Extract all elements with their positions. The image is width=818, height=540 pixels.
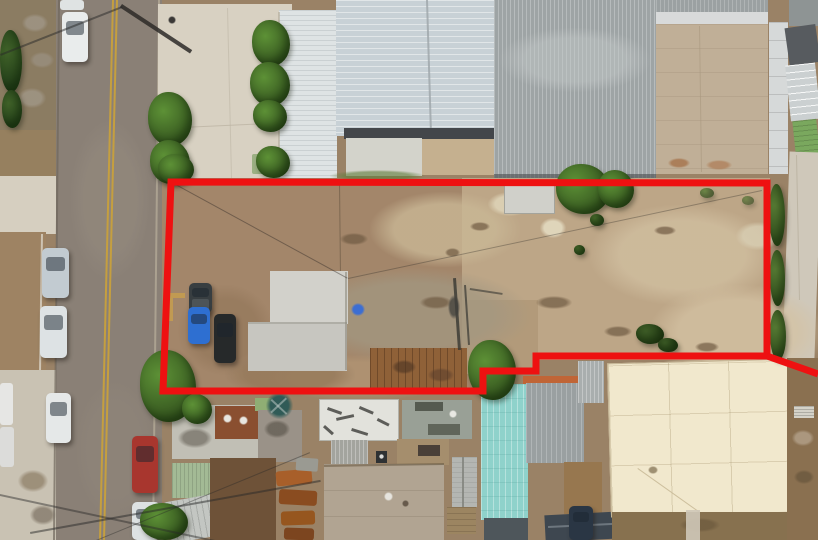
yard-clutter-1	[18, 470, 48, 492]
lot-dark-spot-5	[604, 326, 632, 337]
ac-unit-dot	[379, 454, 384, 459]
roof-cream-mark	[648, 466, 658, 474]
roof-ne-gray	[789, 0, 818, 26]
shed-gable	[452, 457, 477, 507]
roof-cream-hseams	[609, 361, 791, 514]
vent-box-dark	[418, 445, 440, 456]
parapet-east	[769, 22, 788, 174]
roof-ne-striped	[785, 63, 818, 122]
bush-lot-4	[574, 245, 585, 255]
roof-tan-large	[324, 464, 444, 540]
building-in-lot-upper	[270, 271, 348, 324]
car-white-west-2-windshield	[44, 315, 63, 330]
pole-top-dot	[168, 16, 176, 24]
lot-dark-spot-6	[654, 226, 676, 235]
pad-rust-stain-1	[668, 158, 690, 168]
roof-gray-small	[331, 440, 368, 466]
car-red	[132, 436, 158, 493]
tree-apron-ne-1	[252, 20, 290, 66]
car-white-north	[62, 12, 88, 62]
truck-white-edge-2	[0, 427, 14, 467]
car-white-west-2	[40, 306, 67, 358]
rusty-roof-blotch-2	[428, 368, 454, 382]
grass-east-1	[769, 184, 785, 246]
grass-east-3	[770, 310, 786, 360]
junk-rust-4	[284, 527, 314, 540]
junk-gray	[296, 457, 319, 472]
car-black-lot	[214, 314, 236, 363]
junk-rust-2	[279, 489, 318, 506]
shack-clutter-marks	[264, 420, 290, 438]
shack-patch-dark-1	[178, 428, 212, 448]
ground-left-dirt-upper	[0, 130, 62, 180]
car-blue-lot-windshield	[191, 314, 206, 324]
car-white-top-partial	[60, 0, 84, 10]
tree-lot-north-2	[598, 170, 634, 208]
yellow-pipe-frame-h	[168, 293, 185, 298]
building-in-lot-shadow-east	[345, 272, 347, 370]
building-gray-green-vent2	[428, 424, 460, 435]
concrete-pad	[656, 24, 768, 174]
roof-white-main	[336, 0, 500, 136]
lot-grass-fringe-north	[330, 170, 425, 182]
shack-rust-vent-2	[239, 416, 248, 425]
rock-texture-3	[18, 88, 46, 108]
lot-dark-spot-1	[340, 233, 368, 245]
blue-tarp	[351, 303, 365, 316]
car-silver-west	[42, 248, 69, 298]
roof-tan-dot-white	[384, 492, 393, 501]
aerial-photo-lot-boundary	[0, 0, 818, 540]
rock-texture-2	[30, 52, 54, 68]
slat-object-east	[794, 406, 814, 418]
roof-gray-light-band	[500, 28, 650, 92]
lot-dark-spot-10	[470, 222, 490, 231]
tree-apron-sw	[158, 154, 194, 184]
tree-apron-ne-3	[253, 100, 287, 132]
tree-at-step	[468, 340, 516, 400]
car-white-west-3-windshield	[50, 402, 68, 416]
yellow-pipe-frame-v	[168, 294, 173, 321]
shed-gable-ridge	[463, 457, 465, 507]
rock-texture-1	[22, 14, 48, 32]
lot-dark-spot-4	[536, 296, 572, 309]
roof-teal-shade	[481, 384, 528, 520]
junk-rust-3	[281, 510, 315, 525]
dirt-strip-east-clutter1	[792, 430, 814, 446]
roof-ne-dark	[785, 24, 818, 66]
tree-apron-ne-4	[256, 146, 290, 178]
car-red-windshield	[136, 446, 154, 462]
grass-east-2	[770, 250, 785, 306]
gate-frame-blob	[448, 295, 460, 319]
car-white-west-3	[46, 393, 71, 443]
building-in-lot-edge	[248, 322, 347, 324]
building-gray-green-vent	[415, 402, 443, 411]
lot-dark-spot-7	[695, 342, 719, 352]
pad-rust-stain-2	[706, 160, 732, 170]
shack-rust-vent-1	[223, 414, 232, 423]
car-darkblue-se-windshield	[573, 512, 590, 522]
weed-lot-1	[700, 188, 714, 198]
weed-lot-2	[742, 196, 754, 205]
structure-brown-small	[447, 507, 476, 534]
pad-parapet-north	[656, 12, 768, 24]
bush-lot-2	[658, 338, 678, 352]
tree-roadside-nw-1	[148, 92, 192, 146]
roof-teal-dark-south	[484, 518, 528, 540]
truck-white-edge-1	[0, 383, 13, 425]
car-black-lot-windshield	[217, 323, 232, 337]
cypress-nw-2	[2, 90, 22, 128]
dirt-strip-east-clutter2	[794, 470, 814, 484]
yard-clutter-2	[30, 505, 56, 525]
tree-lot-sw-inner	[182, 394, 212, 424]
car-darkblue-se	[569, 506, 593, 540]
cypress-nw-1	[0, 30, 22, 92]
roof-mint-corrugated	[172, 463, 210, 498]
shed-in-lot-north	[504, 184, 555, 214]
building-in-lot-lower	[248, 322, 347, 371]
roof-gray-mid	[526, 383, 584, 463]
shed-gray-north	[578, 361, 604, 403]
truck-dark-lot-windshield	[192, 288, 208, 296]
car-blue-lot	[188, 307, 210, 344]
roof-ne-green	[792, 119, 818, 155]
roof-tan-dark-dot	[402, 500, 409, 507]
building-gray-green-dot	[449, 410, 457, 418]
path-white-south	[686, 510, 700, 540]
shack-rust-roof	[215, 406, 258, 439]
rusty-roof-blotch-1	[392, 360, 416, 374]
car-silver-west-windshield	[46, 257, 65, 271]
loading-wall-tan	[422, 139, 494, 175]
dirt-strip-east	[787, 358, 818, 540]
